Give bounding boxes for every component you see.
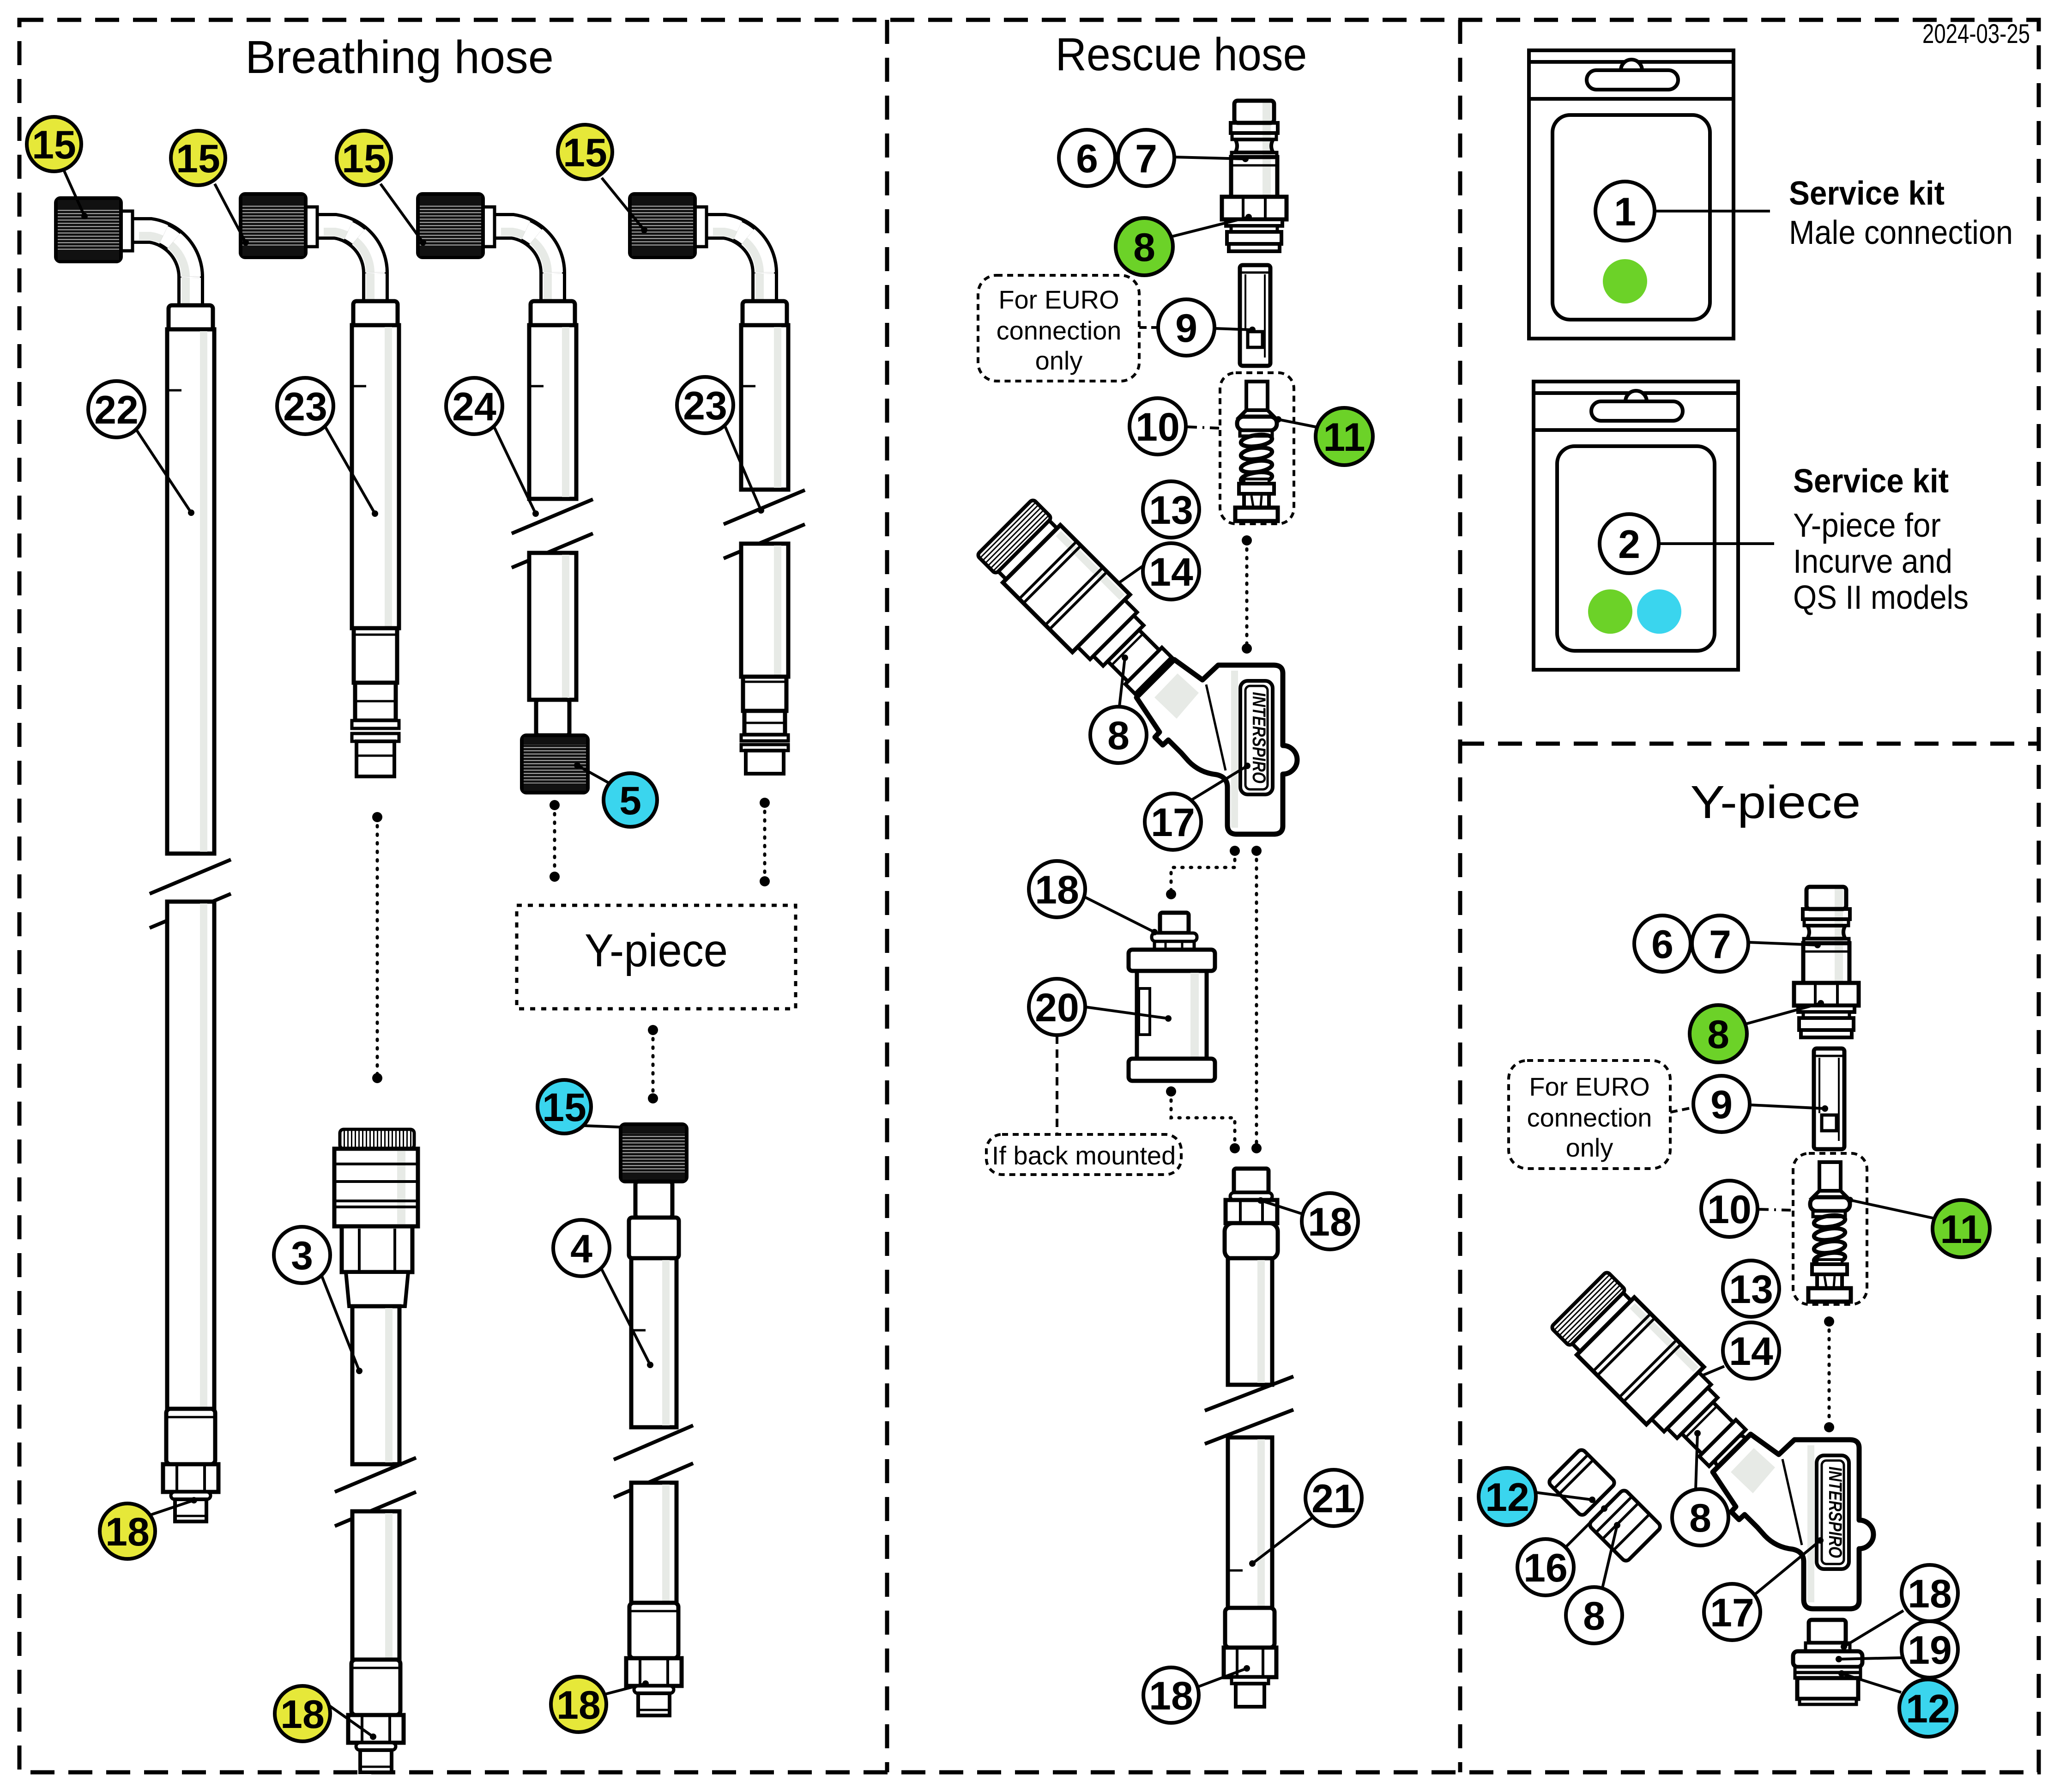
svg-text:16: 16 <box>1523 1546 1568 1590</box>
svg-text:13: 13 <box>1729 1267 1773 1312</box>
svg-text:17: 17 <box>1710 1591 1754 1635</box>
svg-text:Service kit: Service kit <box>1789 175 1945 212</box>
svg-text:18: 18 <box>105 1510 150 1554</box>
svg-text:14: 14 <box>1729 1329 1773 1374</box>
svg-text:15: 15 <box>563 131 607 175</box>
svg-text:1: 1 <box>1614 190 1636 234</box>
svg-text:only: only <box>1035 346 1083 375</box>
svg-text:13: 13 <box>1149 488 1193 533</box>
svg-text:14: 14 <box>1149 550 1193 594</box>
svg-text:6: 6 <box>1651 922 1673 967</box>
svg-text:18: 18 <box>556 1683 601 1727</box>
svg-text:only: only <box>1566 1133 1613 1162</box>
svg-text:connection: connection <box>997 316 1122 345</box>
svg-text:18: 18 <box>1149 1674 1193 1718</box>
svg-text:12: 12 <box>1485 1475 1529 1520</box>
svg-text:22: 22 <box>94 388 139 432</box>
svg-text:8: 8 <box>1133 225 1155 270</box>
svg-text:7: 7 <box>1709 922 1731 967</box>
svg-text:15: 15 <box>342 137 386 181</box>
svg-text:8: 8 <box>1689 1496 1711 1540</box>
svg-text:8: 8 <box>1583 1594 1605 1638</box>
svg-text:18: 18 <box>1908 1572 1952 1616</box>
svg-text:7: 7 <box>1135 137 1157 181</box>
svg-text:6: 6 <box>1076 137 1098 181</box>
svg-text:connection: connection <box>1527 1103 1652 1132</box>
svg-text:15: 15 <box>32 123 76 167</box>
svg-text:Breathing hose: Breathing hose <box>245 31 554 83</box>
svg-text:24: 24 <box>452 385 496 429</box>
svg-text:Incurve and: Incurve and <box>1793 543 1952 580</box>
svg-text:15: 15 <box>542 1085 586 1130</box>
svg-text:Y-piece: Y-piece <box>1691 776 1861 828</box>
svg-text:18: 18 <box>1035 868 1079 912</box>
svg-text:2: 2 <box>1618 522 1640 567</box>
svg-text:Y-piece for: Y-piece for <box>1793 507 1941 544</box>
svg-text:9: 9 <box>1175 306 1197 351</box>
svg-text:23: 23 <box>683 384 727 428</box>
svg-text:Male connection: Male connection <box>1789 214 2013 251</box>
svg-text:12: 12 <box>1906 1687 1950 1731</box>
svg-text:INTERSPIRO: INTERSPIRO <box>1249 692 1269 783</box>
svg-text:Service kit: Service kit <box>1793 463 1949 500</box>
svg-text:Rescue hose: Rescue hose <box>1056 29 1307 80</box>
svg-text:11: 11 <box>1940 1207 1982 1252</box>
svg-text:QS II models: QS II models <box>1793 579 1969 616</box>
svg-text:15: 15 <box>176 137 220 181</box>
svg-text:2024-03-25: 2024-03-25 <box>1922 19 2030 49</box>
svg-text:For EURO: For EURO <box>998 285 1119 314</box>
svg-text:10: 10 <box>1707 1188 1752 1232</box>
svg-text:21: 21 <box>1311 1477 1356 1521</box>
svg-text:17: 17 <box>1151 800 1195 845</box>
svg-text:19: 19 <box>1908 1628 1952 1673</box>
svg-text:Y-piece: Y-piece <box>585 925 728 976</box>
svg-text:10: 10 <box>1136 405 1180 449</box>
svg-text:18: 18 <box>1308 1200 1352 1244</box>
svg-text:9: 9 <box>1710 1083 1733 1127</box>
svg-text:11: 11 <box>1323 415 1365 460</box>
svg-text:If back mounted: If back mounted <box>992 1141 1176 1170</box>
svg-text:8: 8 <box>1707 1012 1729 1057</box>
svg-text:For EURO: For EURO <box>1529 1072 1649 1101</box>
svg-text:4: 4 <box>570 1227 592 1271</box>
svg-text:5: 5 <box>619 779 641 823</box>
svg-text:23: 23 <box>283 385 327 429</box>
svg-text:8: 8 <box>1107 714 1130 758</box>
svg-text:18: 18 <box>280 1692 325 1737</box>
svg-text:20: 20 <box>1035 986 1079 1030</box>
svg-text:3: 3 <box>291 1234 313 1278</box>
